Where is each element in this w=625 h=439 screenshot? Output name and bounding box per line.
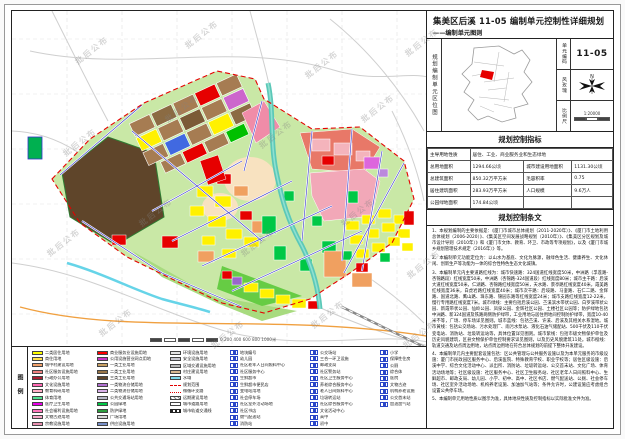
legend-item: 文化活动中心 — [310, 408, 377, 413]
legend-item: 三合一环卫设施 — [310, 356, 377, 361]
legend-swatch-icon — [170, 385, 181, 386]
legend-swatch-icon — [32, 409, 43, 413]
legend-item: 社区综合服务中心 — [310, 402, 377, 407]
legend-item: 广场用地 — [97, 415, 167, 420]
legend-swatch-icon — [310, 382, 318, 387]
location-row: 规划编制单元区位图 单元编码 11-0 — [427, 39, 613, 132]
legend-label: 社区室外活动场地 — [240, 402, 273, 407]
table-row: 主导用地性质 居住、工业、商业服务业和生态绿地 — [428, 149, 613, 161]
legend-item: 供应设施用地 — [97, 421, 167, 426]
legend-swatch-icon — [230, 408, 238, 413]
legend-label: 二类物流仓储用地 — [110, 389, 143, 394]
legend-column-6: 小学保障性住房公厕综合体医院文物古迹机构养老设施公交首末站加油加气站 — [380, 350, 427, 426]
legend-label: 老人日间照料中心 — [320, 389, 353, 394]
legend-item: 生鲜超市 — [230, 376, 307, 381]
legend-item: 变电站用地 — [230, 389, 307, 394]
legend-swatch-icon — [380, 376, 388, 381]
legend-item: 远期建设用地 — [170, 395, 227, 400]
scalebar-segment — [164, 338, 176, 343]
district-outline-map — [444, 42, 554, 128]
legend-item: 燃气配送站 — [230, 415, 307, 420]
legend-item: 公园绿地 — [97, 402, 167, 407]
legend-item: 公共交通场站用地 — [97, 395, 167, 400]
scalebar-segment — [206, 338, 218, 343]
legend-swatch-icon — [32, 422, 43, 426]
legend-swatch-icon — [380, 363, 388, 368]
legend-item: 二类物流仓储用地 — [97, 389, 167, 394]
legend-item: 二类工业用地 — [97, 369, 167, 374]
indicator-value: 174.84公顷 — [470, 197, 524, 209]
legend-item: 环境设施用地 — [170, 350, 227, 355]
scalebar-segment — [192, 338, 204, 343]
legend-item: 地块编号 — [230, 350, 307, 355]
legend-swatch-icon — [97, 396, 108, 400]
legend-label: 教育科研用地 — [45, 389, 70, 394]
legend-swatch-icon — [170, 402, 181, 406]
legend-swatch-icon — [97, 409, 108, 413]
legend-swatch-icon — [310, 421, 318, 426]
legend-label: 城市轨道交通线 — [183, 408, 212, 413]
table-row: 总建筑面积 850.32万平方米 毛容积率 0.75 — [428, 173, 613, 185]
legend-swatch-icon — [97, 370, 108, 374]
legend-item: 生鲜超市便民店 — [230, 382, 307, 387]
legend-item: 三类工业用地 — [97, 376, 167, 381]
legend-item: 公厕 — [380, 363, 427, 368]
legend-label: 规划范围 — [183, 382, 199, 387]
unit-code-label: 单元编码 — [557, 39, 571, 69]
map-scalebar: 0 200 400 600 800 1000米 — [150, 337, 276, 343]
location-map-label: 规划编制单元区位图 — [427, 39, 442, 131]
legend-swatch-icon — [97, 376, 108, 380]
legend-label: 行政办公用地 — [45, 376, 70, 381]
legend-item: 文化设施用地 — [32, 382, 94, 387]
legend-label: 三合一环卫设施 — [320, 356, 349, 361]
scale-ratio: 1:20000 — [584, 111, 601, 116]
legend-label: 机构养老设施 — [390, 389, 415, 394]
scalebar-label: 0 200 400 600 800 1000米 — [220, 337, 276, 343]
legend-label: 生鲜超市便民店 — [240, 382, 269, 387]
legend-swatch-icon — [230, 421, 238, 426]
legend-label: 供应设施用地 — [110, 421, 135, 426]
legend-label: 文化活动中心 — [320, 408, 345, 413]
legend-item: 高中 — [310, 415, 377, 420]
legend-label: 社会福利设施用地 — [45, 408, 78, 413]
legend-swatch-icon — [32, 389, 43, 393]
legend-item: 公交首末站 — [380, 395, 427, 400]
legend-item: 微循环支路 — [170, 389, 227, 394]
indicator-value: 0.75 — [572, 173, 613, 185]
legend-swatch-icon — [170, 376, 181, 380]
legend-item: 消防站 — [230, 421, 307, 426]
legend-swatch-icon — [32, 370, 43, 374]
legend-swatch-icon — [380, 395, 388, 400]
provision-item: 1、本规划编制的主要依据是：《厦门市城市总体规划（2011-2020年）》、《厦… — [432, 229, 608, 253]
indicator-label: 城市建设用地面积 — [524, 161, 572, 173]
legend-label: 保障性住房 — [390, 356, 410, 361]
legend-swatch-icon — [230, 363, 238, 368]
legend-label: 消防站 — [240, 421, 252, 426]
legend-swatch-icon — [380, 357, 388, 362]
legend-swatch-icon — [170, 351, 181, 355]
legend-label: 医院 — [390, 376, 398, 381]
legend-item: 养老综合服务中心 — [310, 382, 377, 387]
legend-label: 综合体 — [390, 369, 402, 374]
legend-item: 社区服务中心 — [230, 369, 307, 374]
legend-label: 社区警务站 — [320, 369, 340, 374]
legend-label: 区域交通设施用地 — [183, 363, 216, 368]
legend-swatch-icon — [32, 376, 43, 380]
indicator-value: 1131.30公顷 — [572, 161, 613, 173]
legend-label: 城市道路用地 — [183, 402, 208, 407]
legend-item: 安全设施用地 — [170, 356, 227, 361]
legend-label: 环境设施用地 — [183, 350, 208, 355]
indicators-table: 主导用地性质 居住、工业、商业服务业和生态绿地 总用地面积 1294.66公顷 … — [427, 148, 613, 209]
legend-label: 邮政支局 — [320, 363, 336, 368]
legend-swatch-icon — [97, 351, 108, 355]
legend-label: 宗教设施用地 — [45, 421, 70, 426]
legend-column-2: 商业服务业设施用地公用设施营业网点用地一类工业用地二类工业用地三类工业用地一类物… — [97, 350, 167, 426]
indicator-value: 283.93万平方米 — [470, 185, 524, 197]
info-panel: 集美区后溪 11-05 编制单元控制性详细规划 ——编制单元图则 规划编制单元区… — [427, 11, 613, 428]
legend-label: 初中 — [320, 421, 328, 426]
legend-swatch-icon — [32, 415, 43, 419]
indicator-label: 公园绿地面积 — [428, 197, 471, 209]
legend-swatch-icon — [230, 376, 238, 381]
legend-item: 体育用地 — [32, 395, 94, 400]
legend-item: 保障性住房 — [380, 356, 427, 361]
legend-item: 垃圾转运站 — [310, 395, 377, 400]
legend-swatch-icon — [380, 389, 388, 394]
table-row: 居住建筑面积 283.93万平方米 人口规模 9.6万人 — [428, 185, 613, 197]
indicator-label: 人口规模 — [524, 185, 572, 197]
legend-item: 邮政支局 — [310, 363, 377, 368]
legend-label: 社区服务设施用地 — [45, 369, 78, 374]
legend-swatch-icon — [170, 370, 181, 374]
legend-item: 文物古迹 — [380, 382, 427, 387]
legend-label: 文化设施用地 — [45, 382, 70, 387]
provision-item: 4、本编制单元内主要配套设施包括：区公共管理与公共服务设施以及为本单元服务的市级… — [432, 352, 608, 395]
legend-item: 社会福利设施用地 — [32, 408, 94, 413]
legend-swatch-icon — [310, 415, 318, 420]
indicators-table-wrap: 主导用地性质 居住、工业、商业服务业和生态绿地 总用地面积 1294.66公顷 … — [427, 148, 613, 210]
legend-swatch-icon — [32, 357, 43, 361]
legend-swatch-icon — [310, 389, 318, 394]
scalebar-segment — [178, 338, 190, 343]
legend-label: 微循环支路 — [183, 389, 203, 394]
legend-swatch-icon — [380, 402, 388, 407]
legend-item: 一类物流仓储用地 — [97, 382, 167, 387]
legend-swatch-icon — [310, 369, 318, 374]
legend-swatch-icon — [170, 357, 181, 361]
land-use-map — [12, 11, 426, 347]
legend-column-5: 公交场站三合一环卫设施邮政支局社区警务站社区卫生服务中心养老综合服务中心老人日间… — [310, 350, 377, 426]
table-row: 公园绿地面积 174.84公顷 — [428, 197, 613, 209]
legend-swatch-icon — [97, 402, 108, 406]
legend-label: 城中村建设用地 — [45, 363, 74, 368]
legend-label: 变电站用地 — [240, 389, 260, 394]
legend-label: 一类物流仓储用地 — [110, 382, 143, 387]
legend-item: 城市轨道交通线 — [170, 408, 227, 413]
legend-item: 社区卫生服务中心 — [310, 376, 377, 381]
legend-label: 社区服务中心 — [240, 369, 265, 374]
legend-swatch-icon — [170, 409, 181, 413]
legend-item: 医院 — [380, 376, 427, 381]
title-block: 集美区后溪 11-05 编制单元控制性详细规划 ——编制单元图则 — [427, 11, 613, 39]
legend-column-1: 二类居住用地商住用地城中村建设用地社区服务设施用地行政办公用地文化设施用地教育科… — [32, 350, 94, 426]
legend-label: 公厕 — [390, 363, 398, 368]
scale-cell: 比例尺 1:20000 — [557, 101, 613, 131]
legend-label: 商业服务业设施用地 — [110, 350, 147, 355]
legend-label: 公交首末站 — [390, 395, 410, 400]
legend-swatch-icon — [380, 350, 388, 355]
legend-swatch-icon — [310, 356, 318, 361]
indicator-value: 1294.66公顷 — [470, 161, 524, 173]
provisions-header: 规划控制条文 — [427, 210, 613, 226]
legend-swatch-icon — [32, 351, 43, 355]
legend-item: 村庄建设用地 — [170, 369, 227, 374]
legend-item: 社区老年人日间照料中心 — [230, 363, 307, 368]
legend-label: 安全设施用地 — [183, 356, 208, 361]
legend-swatch-icon — [310, 408, 318, 413]
legend-label: 远期建设用地 — [183, 395, 208, 400]
legend-item: 公用设施营业网点用地 — [97, 356, 167, 361]
legend-panel: 图例 二类居住用地商住用地城中村建设用地社区服务设施用地行政办公用地文化设施用地… — [12, 346, 426, 428]
legend-label: 体育用地 — [45, 395, 61, 400]
legend-column-4: 地块编号幼儿园社区老年人日间照料中心社区服务中心生鲜超市生鲜超市便民店变电站用地… — [230, 350, 307, 426]
legend-swatch-icon — [310, 395, 318, 400]
indicator-label — [524, 197, 572, 209]
plan-sheet: 0 200 400 600 800 1000米 图例 二类居住用地商住用地城中村… — [4, 4, 621, 435]
legend-item: 社区书店 — [230, 408, 307, 413]
legend-label: 社会停车场 — [240, 395, 260, 400]
legend-item: 小学 — [380, 350, 427, 355]
legend-item: 城中村建设用地 — [32, 363, 94, 368]
legend-label: 广场用地 — [110, 415, 126, 420]
indicator-label: 毛容积率 — [524, 173, 572, 185]
legend-label: 文物古迹 — [390, 382, 406, 387]
legend-item: 综合体 — [380, 369, 427, 374]
legend-item: 水域 — [170, 376, 227, 381]
legend-item: 老人日间照料中心 — [310, 389, 377, 394]
legend-item: 教育科研用地 — [32, 389, 94, 394]
sheet-frame: 0 200 400 600 800 1000米 图例 二类居住用地商住用地城中村… — [11, 10, 614, 429]
legend-swatch-icon — [230, 382, 238, 387]
indicator-value: 9.6万人 — [572, 185, 613, 197]
legend-label: 医疗卫生用地 — [45, 402, 70, 407]
scale-label: 比例尺 — [557, 101, 571, 131]
legend-swatch-icon — [230, 350, 238, 355]
legend-swatch-icon — [310, 376, 318, 381]
legend-swatch-icon — [32, 396, 43, 400]
wind-rose-label: 风玫瑰 — [557, 70, 571, 100]
legend-item: 商业服务业设施用地 — [97, 350, 167, 355]
legend-swatch-icon — [230, 402, 238, 407]
legend-label: 燃气配送站 — [240, 415, 260, 420]
legend-label: 三类工业用地 — [110, 376, 135, 381]
legend-swatch-icon — [230, 389, 238, 394]
legend-swatch-icon — [230, 369, 238, 374]
legend-label: 社区综合服务中心 — [320, 402, 353, 407]
legend-item: 机构养老设施 — [380, 389, 427, 394]
legend-item: 商住用地 — [32, 356, 94, 361]
legend-columns: 二类居住用地商住用地城中村建设用地社区服务设施用地行政办公用地文化设施用地教育科… — [28, 347, 427, 428]
legend-label: 公用设施营业网点用地 — [110, 356, 151, 361]
legend-swatch-icon — [97, 415, 108, 419]
legend-column-3: 环境设施用地安全设施用地区域交通设施用地村庄建设用地水域规划范围微循环支路远期建… — [170, 350, 227, 426]
legend-swatch-icon — [32, 402, 43, 406]
legend-swatch-icon — [32, 383, 43, 387]
legend-item: 行政办公用地 — [32, 376, 94, 381]
indicator-label: 总建筑面积 — [428, 173, 471, 185]
legend-item: 社会停车场 — [230, 395, 307, 400]
legend-item: 公交场站 — [310, 350, 377, 355]
legend-item: 城市道路用地 — [170, 402, 227, 407]
legend-item: 防护绿地 — [97, 408, 167, 413]
legend-label: 公共交通场站用地 — [110, 395, 143, 400]
legend-swatch-icon — [97, 389, 108, 393]
legend-swatch-icon — [230, 415, 238, 420]
legend-label: 垃圾转运站 — [320, 395, 340, 400]
sheet-subtitle: ——编制单元图则 — [433, 28, 607, 37]
legend-item: 加油加气站 — [380, 402, 427, 407]
legend-swatch-icon — [97, 383, 108, 387]
legend-item: 宗教设施用地 — [32, 421, 94, 426]
legend-label: 公园绿地 — [110, 402, 126, 407]
legend-label: 防护绿地 — [110, 408, 126, 413]
scalebar-segment — [150, 338, 162, 343]
legend-item: 幼儿园 — [230, 356, 307, 361]
legend-label: 二类居住用地 — [45, 350, 70, 355]
map-column: 0 200 400 600 800 1000米 图例 二类居住用地商住用地城中村… — [12, 11, 427, 428]
legend-label: 地块编号 — [240, 350, 256, 355]
legend-label: 高中 — [320, 415, 328, 420]
indicator-label: 主导用地性质 — [428, 149, 471, 161]
provision-item: 5、本编制单元用地性质以图示为准，具体地块性质及控制指标以实际批准文件为准。 — [432, 397, 608, 403]
legend-item: 社区服务设施用地 — [32, 369, 94, 374]
legend-label: 社区书店 — [240, 408, 256, 413]
legend-item: 规划范围 — [170, 382, 227, 387]
legend-swatch-icon — [230, 395, 238, 400]
indicator-label: 居住建筑面积 — [428, 185, 471, 197]
legend-label: 文物古迹用地 — [45, 415, 70, 420]
legend-item: 初中 — [310, 421, 377, 426]
legend-label: 村庄建设用地 — [183, 369, 208, 374]
location-meta: 单元编码 11-05 风玫瑰 N — [557, 39, 613, 131]
legend-swatch-icon — [380, 370, 388, 375]
legend-label: 小学 — [390, 350, 398, 355]
legend-item: 二类居住用地 — [32, 350, 94, 355]
table-row: 总用地面积 1294.66公顷 城市建设用地面积 1131.30公顷 — [428, 161, 613, 173]
legend-label: 二类工业用地 — [110, 369, 135, 374]
legend-item: 社区室外活动场地 — [230, 402, 307, 407]
map-area: 0 200 400 600 800 1000米 — [12, 11, 426, 347]
legend-label: 水域 — [183, 376, 191, 381]
legend-item: 文物古迹用地 — [32, 415, 94, 420]
legend-item: 社区警务站 — [310, 369, 377, 374]
provision-item: 2、本编制单元功能定位为：以山水为基底、文化为脉源，融绿色生活、健康养生、文化休… — [432, 256, 608, 268]
legend-label: 社区老年人日间照料中心 — [240, 363, 285, 368]
legend-label: 幼儿园 — [240, 356, 252, 361]
legend-title: 图例 — [12, 347, 28, 428]
sheet-title: 集美区后溪 11-05 编制单元控制性详细规划 — [433, 15, 607, 27]
legend-swatch-icon — [97, 363, 108, 367]
indicator-value: 居住、工业、商业服务业和生态绿地 — [470, 149, 612, 161]
legend-label: 公交场站 — [320, 350, 336, 355]
legend-swatch-icon — [310, 402, 318, 407]
location-map — [442, 39, 557, 131]
legend-item: 一类工业用地 — [97, 363, 167, 368]
indicator-value — [572, 197, 613, 209]
legend-swatch-icon — [170, 364, 181, 368]
legend-swatch-icon — [97, 357, 108, 361]
legend-label: 商住用地 — [45, 356, 61, 361]
legend-label: 生鲜超市 — [240, 376, 256, 381]
legend-item: 医疗卫生用地 — [32, 402, 94, 407]
wind-rose-cell: 风玫瑰 N — [557, 70, 613, 101]
legend-label: 一类工业用地 — [110, 363, 135, 368]
legend-label: 养老综合服务中心 — [320, 382, 353, 387]
indicator-label: 总用地面积 — [428, 161, 471, 173]
legend-swatch-icon — [310, 350, 318, 355]
unit-code-cell: 单元编码 11-05 — [557, 39, 613, 70]
indicators-header: 规划控制指标 — [427, 132, 613, 148]
legend-swatch-icon — [380, 382, 388, 387]
legend-swatch-icon — [32, 363, 43, 367]
unit-code: 11-05 — [576, 49, 607, 59]
legend-label: 社区卫生服务中心 — [320, 376, 353, 381]
scale-bar-icon — [574, 117, 610, 122]
legend-swatch-icon — [170, 392, 181, 393]
legend-item: 区域交通设施用地 — [170, 363, 227, 368]
legend-label: 加油加气站 — [390, 402, 410, 407]
wind-rose-icon: N — [575, 72, 609, 98]
indicator-value: 850.32万平方米 — [470, 173, 524, 185]
legend-swatch-icon — [230, 356, 238, 361]
provision-item: 3、本编制单元内主要道路红线为：城市快速路：324国道红线宽度50米，中洲路（孚… — [432, 271, 608, 350]
legend-swatch-icon — [310, 363, 318, 368]
legend-swatch-icon — [97, 422, 108, 426]
legend-swatch-icon — [170, 396, 181, 400]
provisions-text: 1、本规划编制的主要依据是：《厦门市城市总体规划（2011-2020年）》、《厦… — [427, 226, 613, 428]
